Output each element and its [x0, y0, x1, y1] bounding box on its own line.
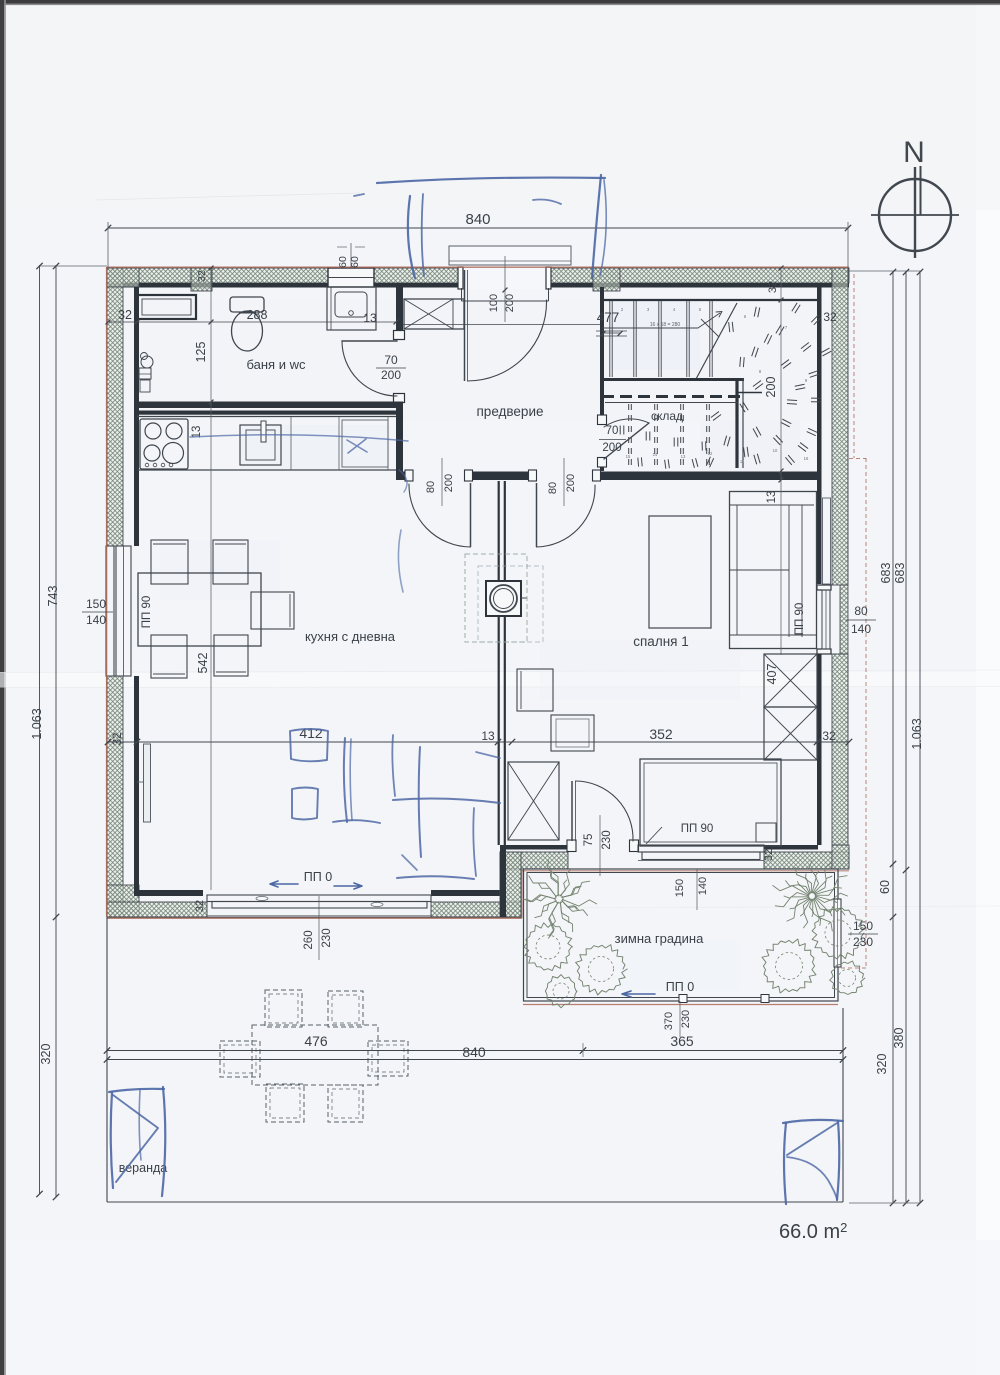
svg-text:200: 200: [504, 294, 516, 312]
svg-text:200: 200: [602, 442, 621, 454]
svg-text:32: 32: [194, 900, 206, 912]
svg-text:80: 80: [854, 604, 868, 618]
svg-text:125: 125: [194, 342, 208, 363]
svg-text:230: 230: [601, 830, 613, 849]
svg-text:13: 13: [766, 491, 778, 504]
svg-text:150: 150: [674, 879, 686, 897]
svg-text:230: 230: [680, 1010, 692, 1028]
svg-text:320: 320: [39, 1044, 53, 1065]
svg-text:352: 352: [649, 726, 673, 742]
svg-text:288: 288: [247, 308, 268, 322]
svg-text:кухня с дневна: кухня с дневна: [305, 629, 396, 644]
svg-text:150: 150: [853, 919, 873, 933]
svg-text:407: 407: [765, 664, 779, 685]
svg-text:140: 140: [697, 877, 709, 895]
svg-text:10: 10: [773, 448, 778, 453]
svg-text:66.0 m2: 66.0 m2: [779, 1220, 847, 1243]
svg-text:743: 743: [46, 586, 60, 607]
svg-text:спалня 1: спалня 1: [633, 634, 688, 649]
svg-text:60: 60: [337, 256, 349, 268]
svg-text:ПП 0: ПП 0: [666, 980, 694, 994]
svg-text:150: 150: [86, 597, 106, 611]
svg-text:15: 15: [626, 454, 631, 459]
svg-text:32: 32: [196, 270, 208, 282]
svg-text:баня и wc: баня и wc: [247, 357, 306, 372]
svg-text:60: 60: [349, 256, 361, 268]
svg-text:32: 32: [118, 308, 132, 322]
svg-text:70: 70: [606, 425, 619, 437]
svg-text:80: 80: [547, 482, 559, 494]
svg-text:200: 200: [381, 368, 401, 382]
svg-text:370: 370: [663, 1012, 675, 1030]
svg-text:365: 365: [670, 1033, 694, 1049]
svg-text:14: 14: [653, 452, 658, 457]
svg-text:1.063: 1.063: [910, 718, 924, 749]
svg-text:ПП 90: ПП 90: [794, 603, 806, 636]
svg-text:542: 542: [196, 653, 210, 674]
svg-text:1.063: 1.063: [30, 708, 44, 739]
svg-text:ПП 0: ПП 0: [304, 870, 332, 884]
svg-text:683: 683: [879, 563, 893, 584]
svg-text:предверие: предверие: [477, 404, 544, 419]
svg-text:60: 60: [878, 880, 892, 894]
svg-text:16 x 18 = 280: 16 x 18 = 280: [650, 322, 681, 328]
svg-text:260: 260: [303, 930, 315, 949]
svg-text:840: 840: [462, 1044, 486, 1060]
svg-text:840: 840: [465, 211, 490, 228]
svg-text:75: 75: [583, 834, 595, 847]
svg-text:12: 12: [708, 451, 713, 456]
svg-text:N: N: [903, 136, 925, 169]
svg-text:ПП 90: ПП 90: [141, 596, 153, 629]
svg-text:13: 13: [363, 311, 377, 325]
svg-text:16: 16: [804, 456, 809, 461]
svg-text:200: 200: [565, 474, 577, 492]
svg-text:230: 230: [321, 928, 333, 947]
svg-text:683: 683: [893, 563, 907, 584]
svg-text:380: 380: [892, 1028, 906, 1049]
svg-text:32: 32: [763, 849, 775, 861]
svg-text:ПП 90: ПП 90: [681, 823, 714, 835]
svg-text:412: 412: [299, 725, 323, 741]
svg-text:140: 140: [86, 613, 106, 627]
svg-text:32: 32: [767, 281, 779, 293]
svg-text:320: 320: [875, 1054, 889, 1075]
svg-text:зимна градина: зимна градина: [615, 931, 704, 946]
svg-text:склад: склад: [651, 409, 683, 423]
svg-text:80: 80: [425, 481, 437, 493]
svg-text:13: 13: [481, 729, 495, 743]
svg-text:200: 200: [764, 377, 778, 398]
svg-text:200: 200: [443, 474, 455, 492]
svg-text:13: 13: [681, 454, 686, 459]
svg-text:32: 32: [822, 729, 836, 743]
svg-text:140: 140: [851, 622, 871, 636]
svg-text:32: 32: [823, 310, 837, 324]
svg-text:230: 230: [853, 935, 873, 949]
svg-text:476: 476: [304, 1033, 328, 1049]
svg-text:32: 32: [112, 733, 124, 746]
svg-text:100: 100: [488, 294, 500, 312]
svg-text:70: 70: [384, 353, 398, 367]
svg-text:477: 477: [597, 310, 620, 325]
svg-text:11: 11: [740, 459, 745, 464]
